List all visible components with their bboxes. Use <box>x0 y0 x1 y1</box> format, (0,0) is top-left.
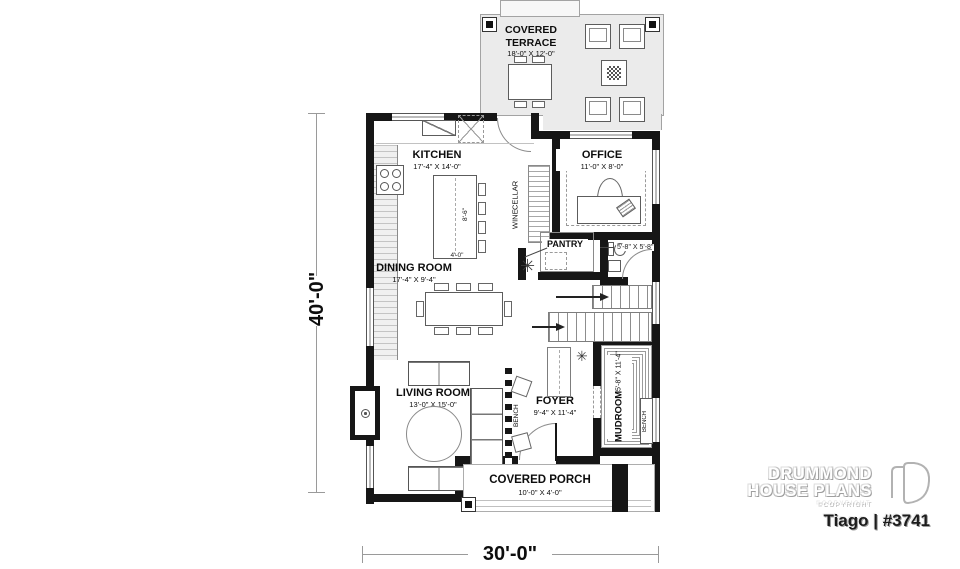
plan-name: Tiago | #3741 <box>730 511 930 531</box>
mudroom-dims: 5'-8" X 11'-4" <box>616 351 623 391</box>
dining-chair <box>456 283 471 291</box>
office-top-window <box>570 131 632 139</box>
terrace-door-arc <box>497 118 531 152</box>
terrace-armchair <box>585 24 611 49</box>
stairs-lower-arrow-line <box>532 326 556 328</box>
kitchen-label: KITCHEN 17'-4" X 14'-0" <box>392 149 482 171</box>
living-window <box>366 446 374 488</box>
kitchen-upper-cabinet <box>458 115 484 143</box>
powder-sink <box>608 260 621 272</box>
porch-label: COVERED PORCH 10'-0" X 4'-0" <box>470 474 610 497</box>
wine-cellar-line2: CELLAR <box>511 181 520 210</box>
logo-line1: DRUMMOND <box>768 465 872 483</box>
dining-label: DINING ROOM 17'-4" X 9'-4" <box>366 262 462 284</box>
island-stool <box>478 202 486 215</box>
island-width-dim: 4'-0" <box>444 252 470 259</box>
range-burner <box>392 182 401 191</box>
mudroom-name: MUDROOM <box>614 391 625 442</box>
dining-chair <box>416 301 424 317</box>
plant-icon: ✳ <box>520 256 535 277</box>
terrace-chair <box>532 56 545 63</box>
living-rug <box>406 406 462 462</box>
terrace-post-right <box>645 17 660 32</box>
stairs-lower-arrow-head <box>556 323 565 331</box>
terrace-name-line1: COVERED <box>505 24 557 36</box>
terrace-chair <box>514 56 527 63</box>
office-name: OFFICE <box>582 149 622 161</box>
island-length-dim: 8'-6" <box>462 198 469 232</box>
stairs-up-arrow-line <box>556 296 600 298</box>
terrace-chair <box>514 101 527 108</box>
plant-icon: ✳ <box>576 348 588 365</box>
closet-rod-line <box>559 350 560 394</box>
floor-plan-canvas: COVERED TERRACE 18'-0" X 12'-0" <box>0 0 960 569</box>
living-sofa-right <box>470 388 503 467</box>
wine-cellar-label: WINE CELLAR <box>504 168 526 242</box>
foyer-label: FOYER 9'-4" X 11'-4" <box>522 395 588 417</box>
kitchen-ceiling-line <box>376 143 534 144</box>
porch-post-left <box>461 497 476 512</box>
powder-door-arc <box>622 249 652 279</box>
drummond-logo-icon <box>878 460 932 506</box>
island-stool <box>478 240 486 253</box>
stairs-up-arrow-head <box>600 293 609 301</box>
kitchen-name: KITCHEN <box>413 149 462 161</box>
mudroom-label: MUDROOM 5'-8" X 11'-4" <box>606 355 632 439</box>
logo-wordmark: DRUMMOND HOUSE PLANS <box>712 466 872 501</box>
dining-chair <box>434 327 449 335</box>
kitchen-island <box>433 175 477 259</box>
office-side-window <box>652 150 660 204</box>
terrace-dims: 18'-0" X 12'-0" <box>498 49 564 58</box>
firepit-coals <box>607 66 621 80</box>
living-bench-strip <box>505 368 512 464</box>
island-stool <box>478 183 486 196</box>
width-dim-tick-right <box>658 546 659 563</box>
foyer-closet <box>547 347 571 397</box>
terrace-armchair <box>619 24 645 49</box>
terrace-armchair <box>585 97 611 122</box>
depth-dim-tick-bottom <box>308 492 325 493</box>
range-burner <box>380 182 389 191</box>
terrace-post-left <box>482 17 497 32</box>
mudroom-opening-dashed <box>593 386 601 418</box>
mudroom-side-window <box>652 398 660 442</box>
wall-foyer-bottom-right <box>556 456 600 464</box>
width-dim-tick-left <box>362 546 363 563</box>
porch-dims: 10'-0" X 4'-0" <box>470 488 610 497</box>
living-loveseat-bottom <box>408 466 470 491</box>
width-dim-label: 30'-0" <box>468 542 552 566</box>
dining-chair <box>478 327 493 335</box>
mudroom-bench-label: BENCH <box>642 406 648 436</box>
terrace-chair <box>532 101 545 108</box>
foyer-dims: 9'-4" X 11'-4" <box>522 408 588 417</box>
logo-line2: HOUSE PLANS <box>747 482 872 500</box>
wall-bottom-living <box>366 494 463 502</box>
powder-dim-leader <box>600 247 614 248</box>
porch-name: COVERED PORCH <box>489 474 591 486</box>
copyright-text: ©COPYRIGHT <box>712 502 882 508</box>
kitchen-dims: 17'-4" X 14'-0" <box>392 162 482 171</box>
depth-dim-tick-top <box>308 113 325 114</box>
dining-chair <box>504 301 512 317</box>
dining-chair <box>478 283 493 291</box>
terrace-label: COVERED TERRACE 18'-0" X 12'-0" <box>498 24 564 58</box>
depth-dim-label: 40'-0" <box>304 276 330 326</box>
dining-chair <box>434 283 449 291</box>
dining-name: DINING ROOM <box>376 262 452 274</box>
wall-pantry-bottom <box>538 272 600 280</box>
office-dims: 11'-0" X 8'-0" <box>556 162 648 171</box>
hall-side-window <box>652 282 660 324</box>
wine-cellar-line1: WINE <box>511 210 520 230</box>
living-name: LIVING ROOM <box>396 387 470 399</box>
dining-window <box>366 288 374 346</box>
range-hood <box>422 120 456 136</box>
living-loveseat-top <box>408 361 470 386</box>
terrace-armchair <box>619 97 645 122</box>
living-bench-label: BENCH <box>513 402 520 430</box>
pantry-label: PANTRY <box>542 239 588 250</box>
dining-table <box>425 292 503 326</box>
terrace-table <box>508 64 552 100</box>
pantry-name: PANTRY <box>547 239 583 249</box>
fireplace <box>350 386 380 440</box>
dining-chair <box>456 327 471 335</box>
office-label: OFFICE 11'-0" X 8'-0" <box>556 149 648 171</box>
terrace-name-line2: TERRACE <box>506 37 557 49</box>
terrace-step <box>500 0 580 17</box>
island-stool <box>478 221 486 234</box>
terrace-firepit <box>601 60 627 86</box>
wall-mudroom-bottom <box>593 448 660 456</box>
pantry-dashed-cabinet <box>545 252 567 270</box>
porch-post-right <box>612 464 628 512</box>
range-burner <box>380 169 389 178</box>
island-center-line <box>455 178 456 256</box>
